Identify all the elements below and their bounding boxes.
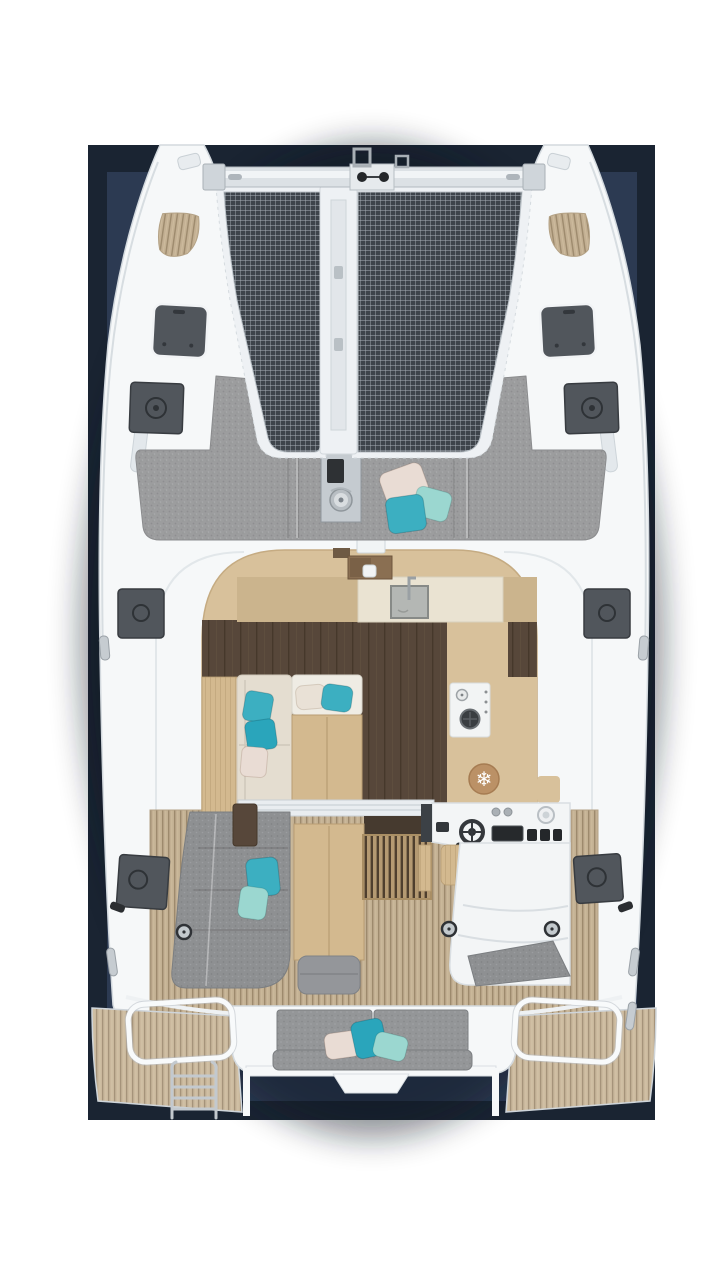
crossbeam-slot-port — [228, 174, 242, 180]
starboard-side-deck-hatch — [584, 589, 630, 638]
foredeck-pillow-teal — [385, 494, 428, 535]
crossbeam-slot-starboard — [506, 174, 520, 180]
bridle-fitting-starboard — [379, 172, 389, 182]
stove-knob — [485, 701, 488, 704]
spine-latch — [334, 266, 343, 279]
port-side-deck-hatch — [118, 589, 164, 638]
cockpit-armrest-box — [233, 804, 257, 846]
transom-side-port — [243, 1068, 250, 1116]
spine-channel — [331, 200, 346, 430]
forward-locker-band-port — [237, 577, 360, 622]
helm-console-side-panel — [421, 804, 432, 842]
helm-switch — [553, 829, 562, 841]
starboard-midship-cleat — [638, 636, 649, 661]
port-midship-cleat — [99, 636, 110, 661]
spine-latch — [334, 338, 343, 351]
crossbeam-end-starboard — [523, 164, 545, 190]
deck-fill-center — [447, 927, 450, 930]
port-cabinet-column — [202, 677, 237, 815]
catamaran-deck-plan-render: ❄ — [0, 0, 722, 1280]
throttle-lever — [436, 822, 449, 832]
cockpit-ottoman — [298, 956, 360, 994]
stove-burner-small-cap — [461, 694, 464, 697]
boat-plan-canvas: ❄ — [0, 0, 722, 1280]
sink-counter — [358, 577, 503, 622]
compass-dome — [543, 812, 550, 819]
forward-locker-band-starboard — [503, 577, 537, 622]
salon-pillow-blush — [240, 746, 269, 778]
forward-hatch-latch — [363, 565, 376, 577]
port-aft-deck-hatch — [116, 854, 170, 909]
hatch-latch — [563, 310, 575, 315]
windlass-chain-locker — [327, 459, 344, 483]
helm-switch — [540, 829, 550, 841]
trampoline-area — [203, 149, 545, 458]
mast-step-plate — [357, 539, 385, 553]
transom-side-starboard — [492, 1068, 499, 1116]
engine-gauge — [492, 808, 500, 816]
snowflake-icon: ❄ — [476, 767, 493, 791]
bridle-fitting-port — [357, 172, 367, 182]
deck-fill-center — [182, 930, 185, 933]
forward-box-small — [333, 548, 350, 558]
galley-tall-locker — [508, 622, 537, 677]
windlass-capstan-hub — [339, 498, 344, 503]
galley-counter-extension — [537, 776, 560, 803]
crossbeam-end-port — [203, 164, 225, 190]
cockpit-pillow-mint — [237, 885, 269, 921]
starboard-aft-deck-hatch — [573, 854, 623, 904]
hatch-latch — [173, 310, 185, 315]
helm-switch — [527, 829, 537, 841]
berth-pillow-teal — [320, 683, 353, 713]
chartplotter-display — [492, 826, 523, 841]
galley-module-side — [419, 845, 431, 891]
salon-interior: ❄ — [202, 539, 560, 838]
stove-knob — [485, 711, 488, 714]
stove-knob — [485, 691, 488, 694]
deck-fill-center — [550, 927, 553, 930]
cockpit-sofa — [172, 812, 290, 988]
transom-step — [333, 1074, 409, 1093]
engine-gauge — [504, 808, 512, 816]
